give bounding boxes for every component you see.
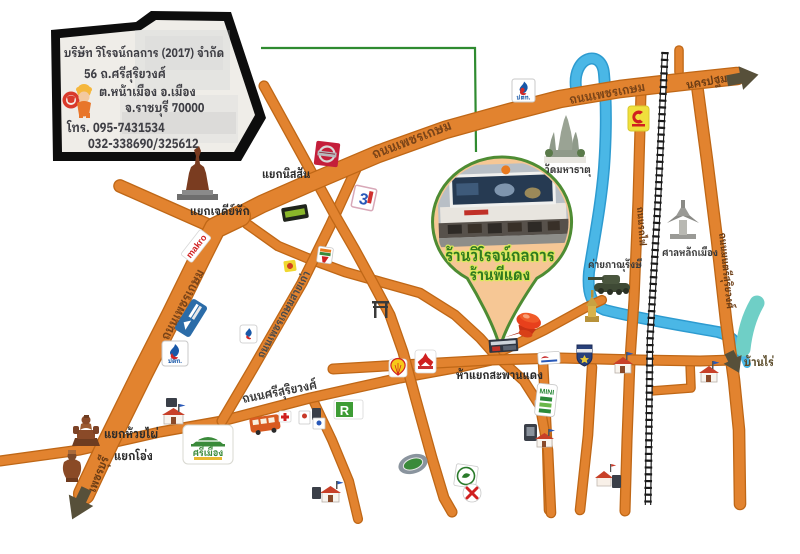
svg-text:R: R [340, 403, 350, 418]
